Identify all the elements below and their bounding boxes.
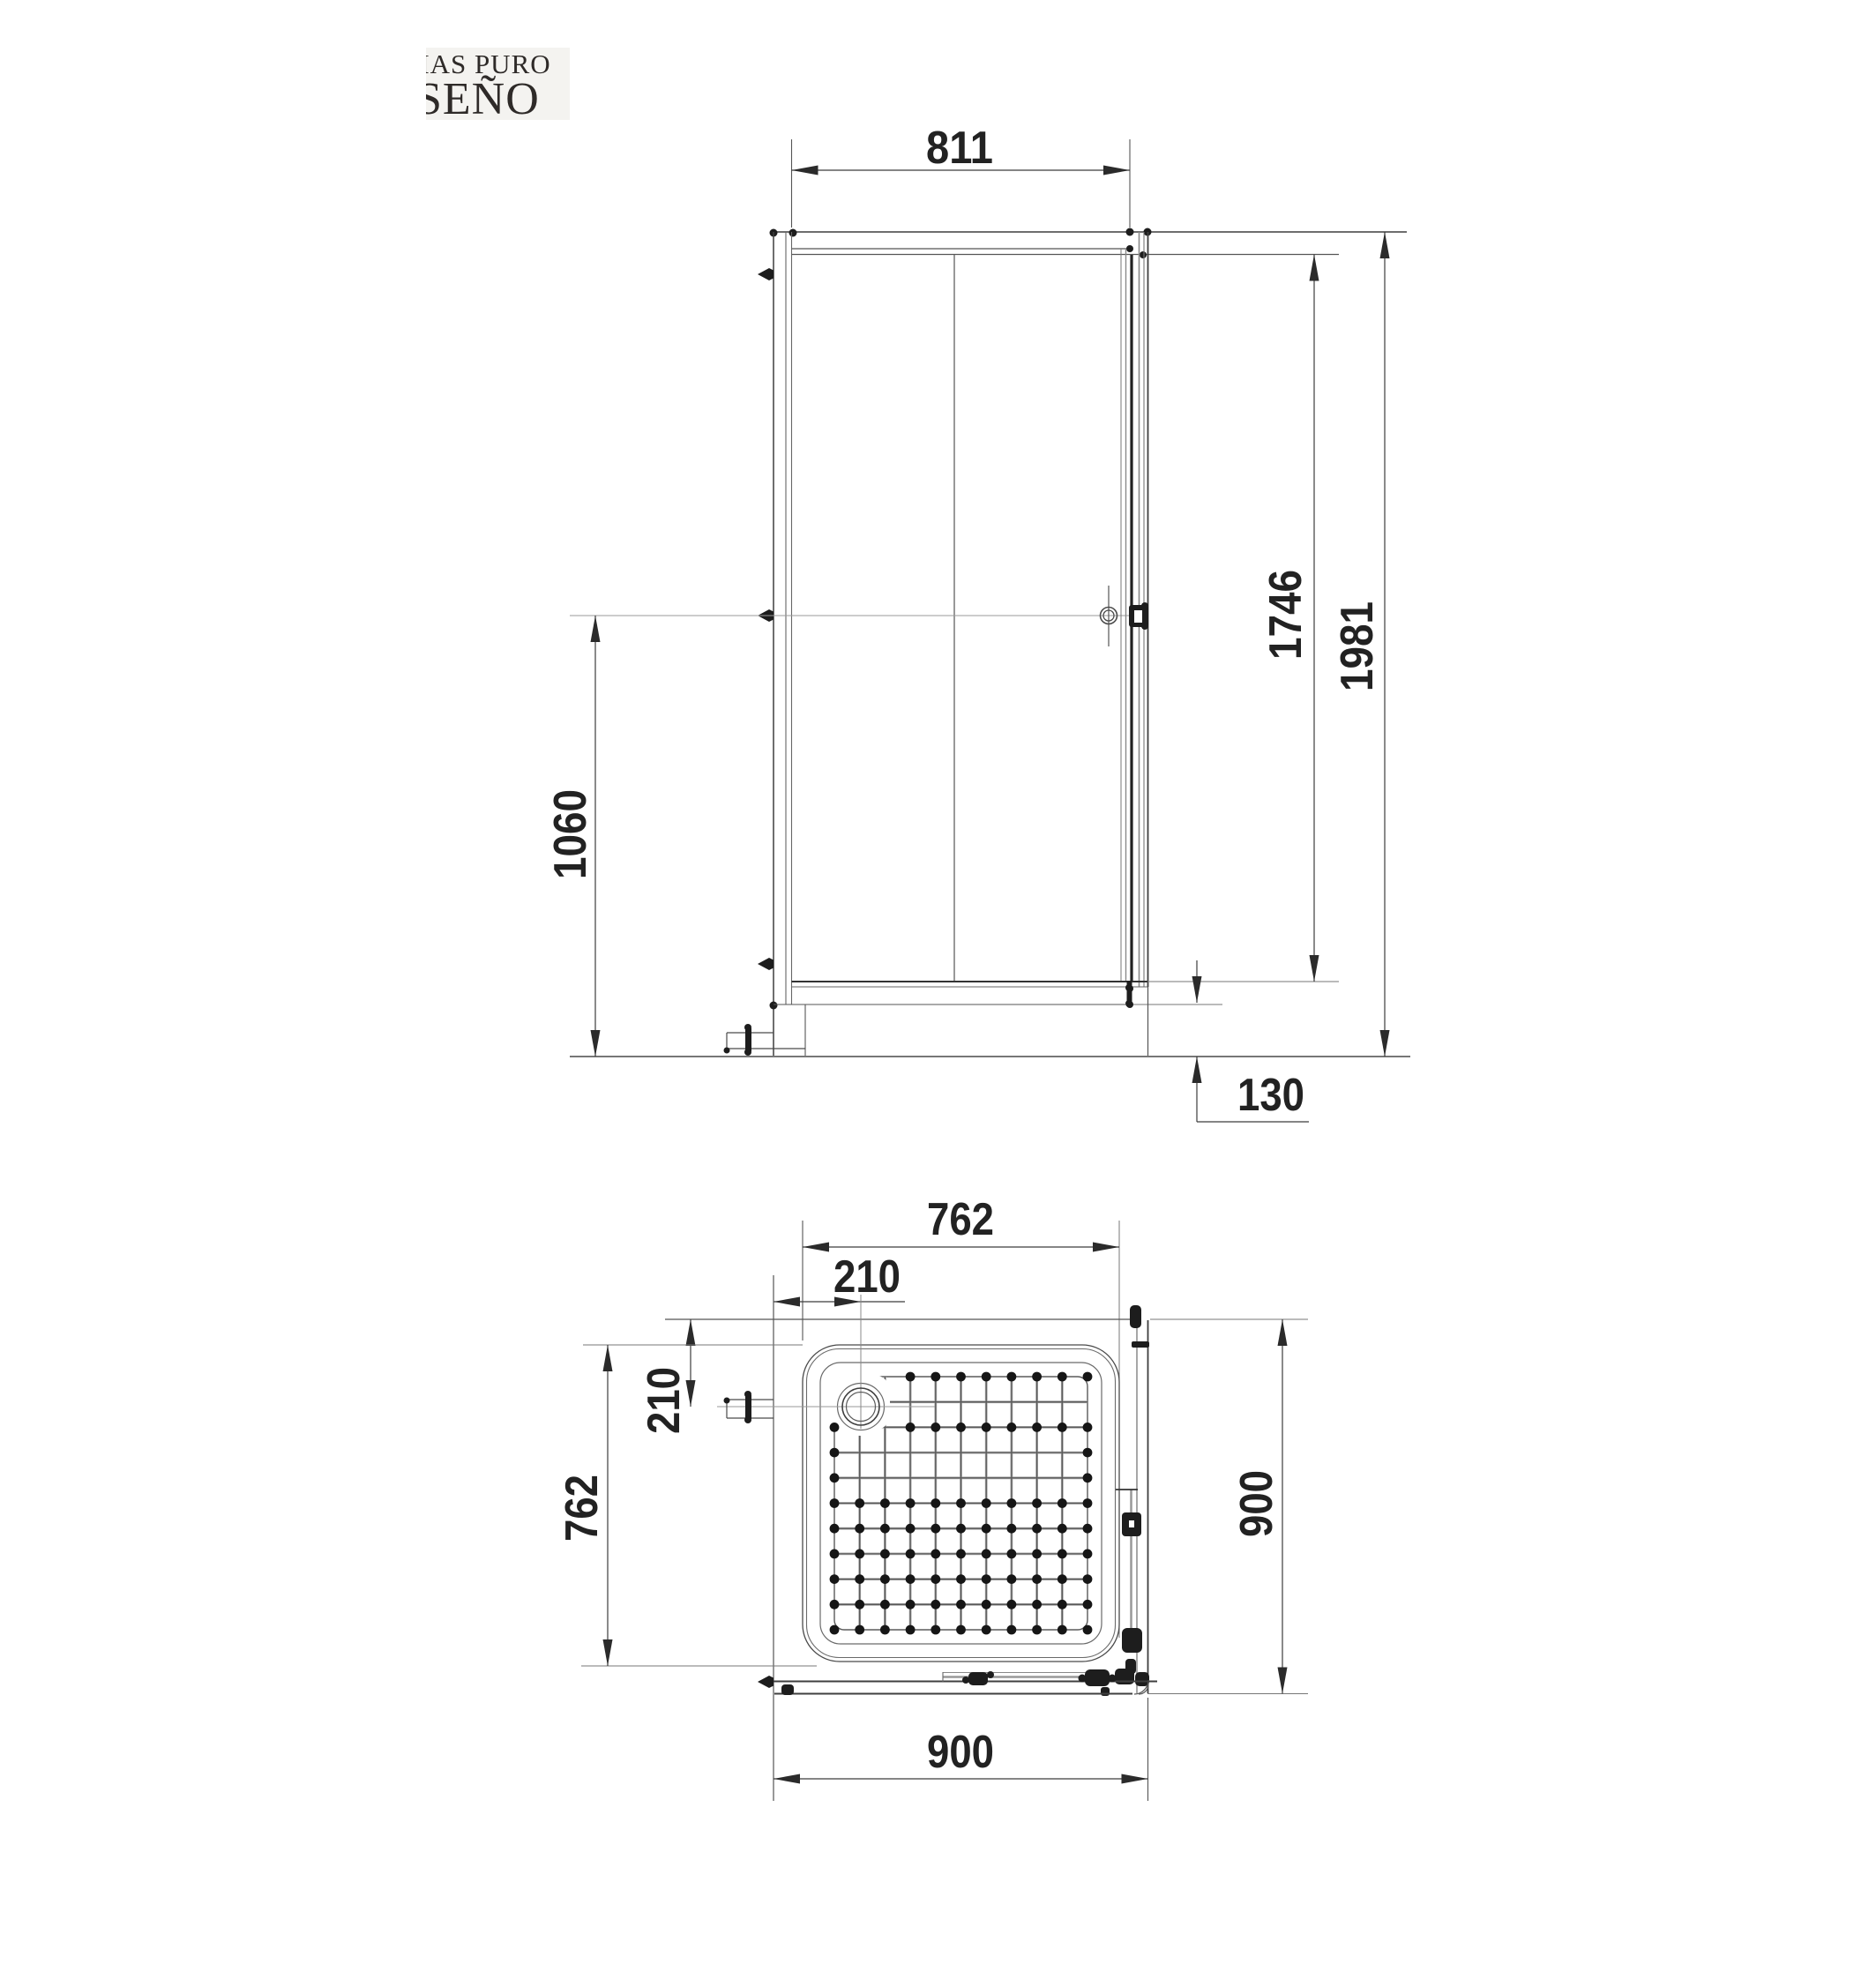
svg-text:762: 762 bbox=[557, 1475, 608, 1542]
svg-text:1981: 1981 bbox=[1332, 601, 1383, 691]
svg-text:1746: 1746 bbox=[1260, 570, 1312, 660]
svg-text:900: 900 bbox=[1231, 1470, 1282, 1537]
svg-text:210: 210 bbox=[833, 1251, 901, 1303]
svg-text:762: 762 bbox=[927, 1194, 994, 1245]
svg-text:811: 811 bbox=[926, 123, 993, 174]
svg-text:210: 210 bbox=[639, 1367, 690, 1434]
svg-text:900: 900 bbox=[927, 1727, 994, 1778]
svg-text:SEÑO: SEÑO bbox=[416, 74, 540, 124]
svg-text:1060: 1060 bbox=[545, 789, 596, 879]
svg-text:130: 130 bbox=[1237, 1070, 1304, 1121]
